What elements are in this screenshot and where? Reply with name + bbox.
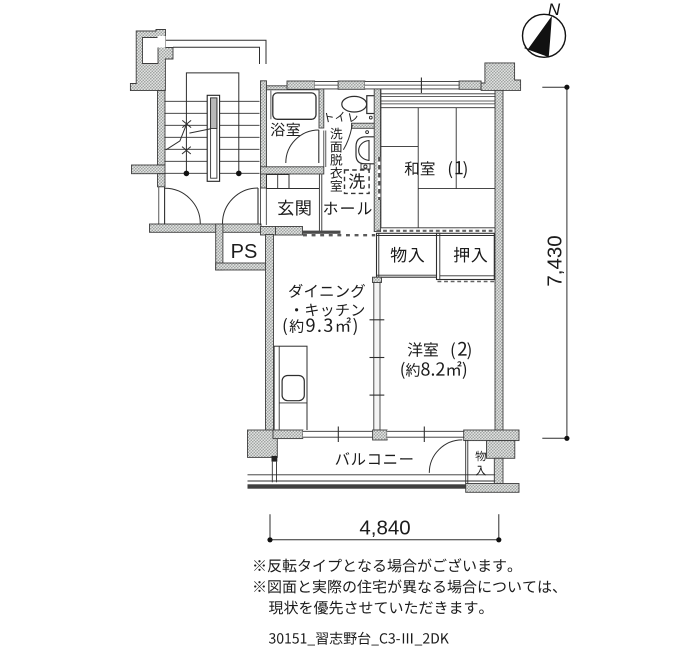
svg-text:PS: PS — [231, 241, 258, 263]
svg-text:4,840: 4,840 — [359, 517, 410, 540]
svg-text:N: N — [548, 0, 561, 19]
svg-text:7,430: 7,430 — [544, 235, 567, 286]
